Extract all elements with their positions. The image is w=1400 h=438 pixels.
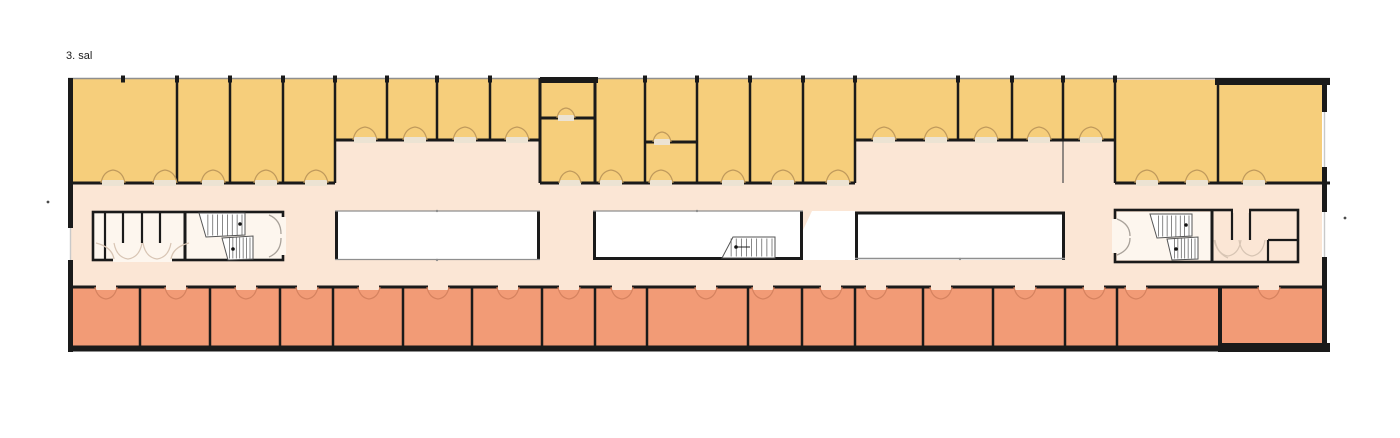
stair-flight <box>199 213 245 237</box>
void-1 <box>335 211 540 260</box>
door-gap <box>612 284 632 290</box>
door-gap <box>1084 284 1104 290</box>
void-3 <box>855 212 1065 260</box>
door-gap <box>96 284 116 290</box>
column-tick <box>333 76 337 83</box>
door-gap <box>428 284 448 290</box>
floor-plan-page: 3. sal <box>0 0 1400 438</box>
door-gap <box>559 284 579 290</box>
door-gap <box>753 284 773 290</box>
door-gap <box>359 284 379 290</box>
dot-mark <box>436 210 438 212</box>
door-gap <box>1259 284 1279 290</box>
door-gap <box>354 137 376 143</box>
north-rooms-a <box>70 78 335 183</box>
column-tick <box>385 76 389 83</box>
floor-plan <box>0 0 1400 438</box>
door-gap <box>1112 219 1118 253</box>
door-gap <box>559 180 581 186</box>
door-gap <box>873 137 895 143</box>
dot-mark <box>1344 217 1347 220</box>
dot-mark <box>959 258 961 260</box>
stair-arrow-dot <box>734 245 738 249</box>
dot-mark <box>696 210 698 212</box>
door-gap <box>772 180 794 186</box>
column-tick <box>1061 76 1065 83</box>
door-gap <box>498 284 518 290</box>
dot-mark <box>436 259 438 261</box>
door-gap <box>236 284 256 290</box>
door-gap <box>558 115 574 121</box>
stair-arrow-dot <box>1184 223 1188 227</box>
door-gap <box>297 284 317 290</box>
stair-arrow-dot <box>238 222 242 226</box>
door-gap <box>827 180 849 186</box>
column-tick <box>643 76 647 83</box>
stair-flight <box>222 236 253 260</box>
column-tick <box>801 76 805 83</box>
column-tick <box>1010 76 1014 83</box>
column-tick <box>488 76 492 83</box>
door-gap <box>722 180 744 186</box>
door-gap <box>404 137 426 143</box>
door-gap <box>113 257 172 262</box>
column-tick <box>956 76 960 83</box>
door-gap <box>600 180 622 186</box>
door-gap <box>975 137 997 143</box>
column-tick <box>1113 76 1117 83</box>
door-gap <box>931 284 951 290</box>
door-gap <box>102 180 124 186</box>
door-gap <box>1243 180 1265 186</box>
stair-arrow-dot <box>1174 247 1178 251</box>
door-gap <box>1126 284 1146 290</box>
door-gap <box>866 284 886 290</box>
door-gap <box>280 217 286 255</box>
column-tick <box>121 76 125 83</box>
door-gap <box>925 137 947 143</box>
door-gap <box>1015 284 1035 290</box>
door-gap <box>154 180 176 186</box>
column-tick <box>695 76 699 83</box>
stair-arrow-dot <box>231 247 235 251</box>
door-gap <box>821 284 841 290</box>
door-gap <box>1186 180 1208 186</box>
door-gap <box>202 180 224 186</box>
door-gap <box>506 137 528 143</box>
column-tick <box>748 76 752 83</box>
column-tick <box>435 76 439 83</box>
door-gap <box>454 137 476 143</box>
column-tick <box>175 76 179 83</box>
stair-core-west <box>93 212 283 260</box>
dot-mark <box>47 201 50 204</box>
door-gap <box>1080 137 1102 143</box>
door-gap <box>305 180 327 186</box>
north-rooms-e <box>855 78 1115 140</box>
door-gap <box>255 180 277 186</box>
door-gap <box>1136 180 1158 186</box>
door-gap <box>650 180 672 186</box>
column-tick <box>853 76 857 83</box>
door-gap <box>166 284 186 290</box>
door-gap <box>1028 137 1050 143</box>
door-gap <box>696 284 716 290</box>
column-tick <box>228 76 232 83</box>
stair-flight <box>1167 237 1198 260</box>
door-gap <box>1233 208 1249 213</box>
south-rooms <box>70 287 1322 348</box>
door-gap <box>654 139 670 145</box>
column-tick <box>281 76 285 83</box>
